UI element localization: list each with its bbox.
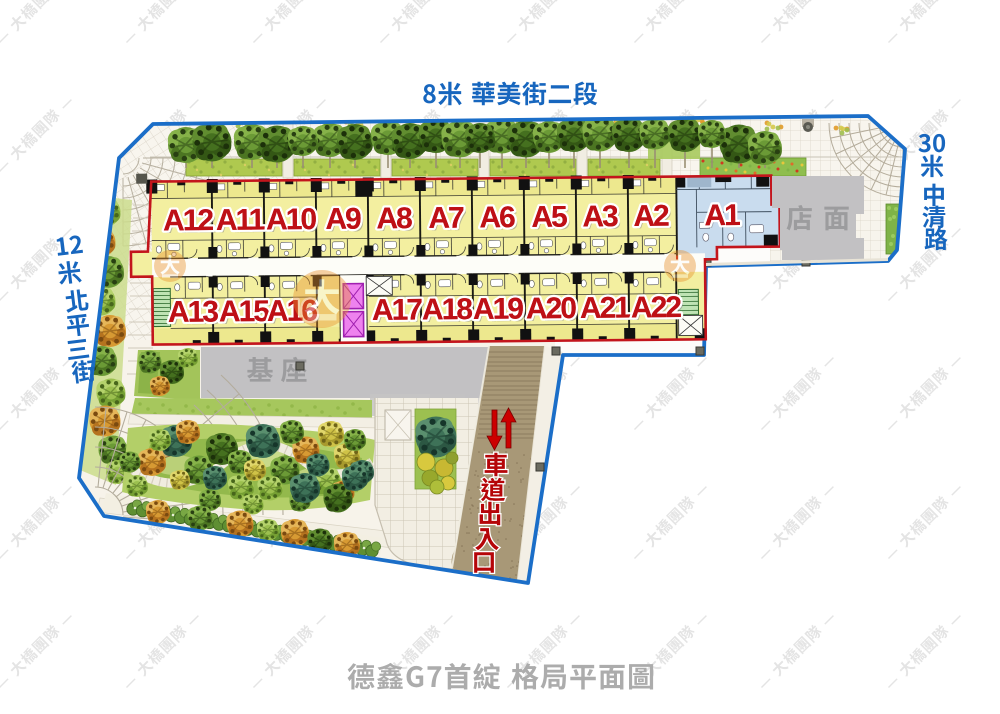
svg-text:A8: A8 bbox=[376, 202, 412, 235]
svg-text:A11: A11 bbox=[216, 203, 265, 236]
svg-text:A22: A22 bbox=[631, 291, 682, 324]
svg-text:A2: A2 bbox=[633, 200, 669, 233]
svg-text:A19: A19 bbox=[473, 293, 524, 326]
svg-text:A1: A1 bbox=[704, 199, 740, 232]
svg-text:A7: A7 bbox=[428, 202, 464, 235]
svg-text:A5: A5 bbox=[531, 201, 567, 234]
svg-text:A6: A6 bbox=[479, 201, 515, 234]
svg-text:A9: A9 bbox=[325, 203, 361, 236]
svg-text:A20: A20 bbox=[526, 292, 577, 325]
svg-text:A17: A17 bbox=[372, 293, 423, 326]
svg-text:A3: A3 bbox=[582, 200, 618, 233]
svg-text:A12: A12 bbox=[163, 204, 214, 237]
svg-text:A10: A10 bbox=[266, 203, 317, 236]
svg-text:A21: A21 bbox=[580, 291, 631, 324]
svg-text:A18: A18 bbox=[422, 293, 473, 326]
svg-text:A15: A15 bbox=[219, 295, 270, 328]
svg-text:A13: A13 bbox=[168, 295, 219, 328]
